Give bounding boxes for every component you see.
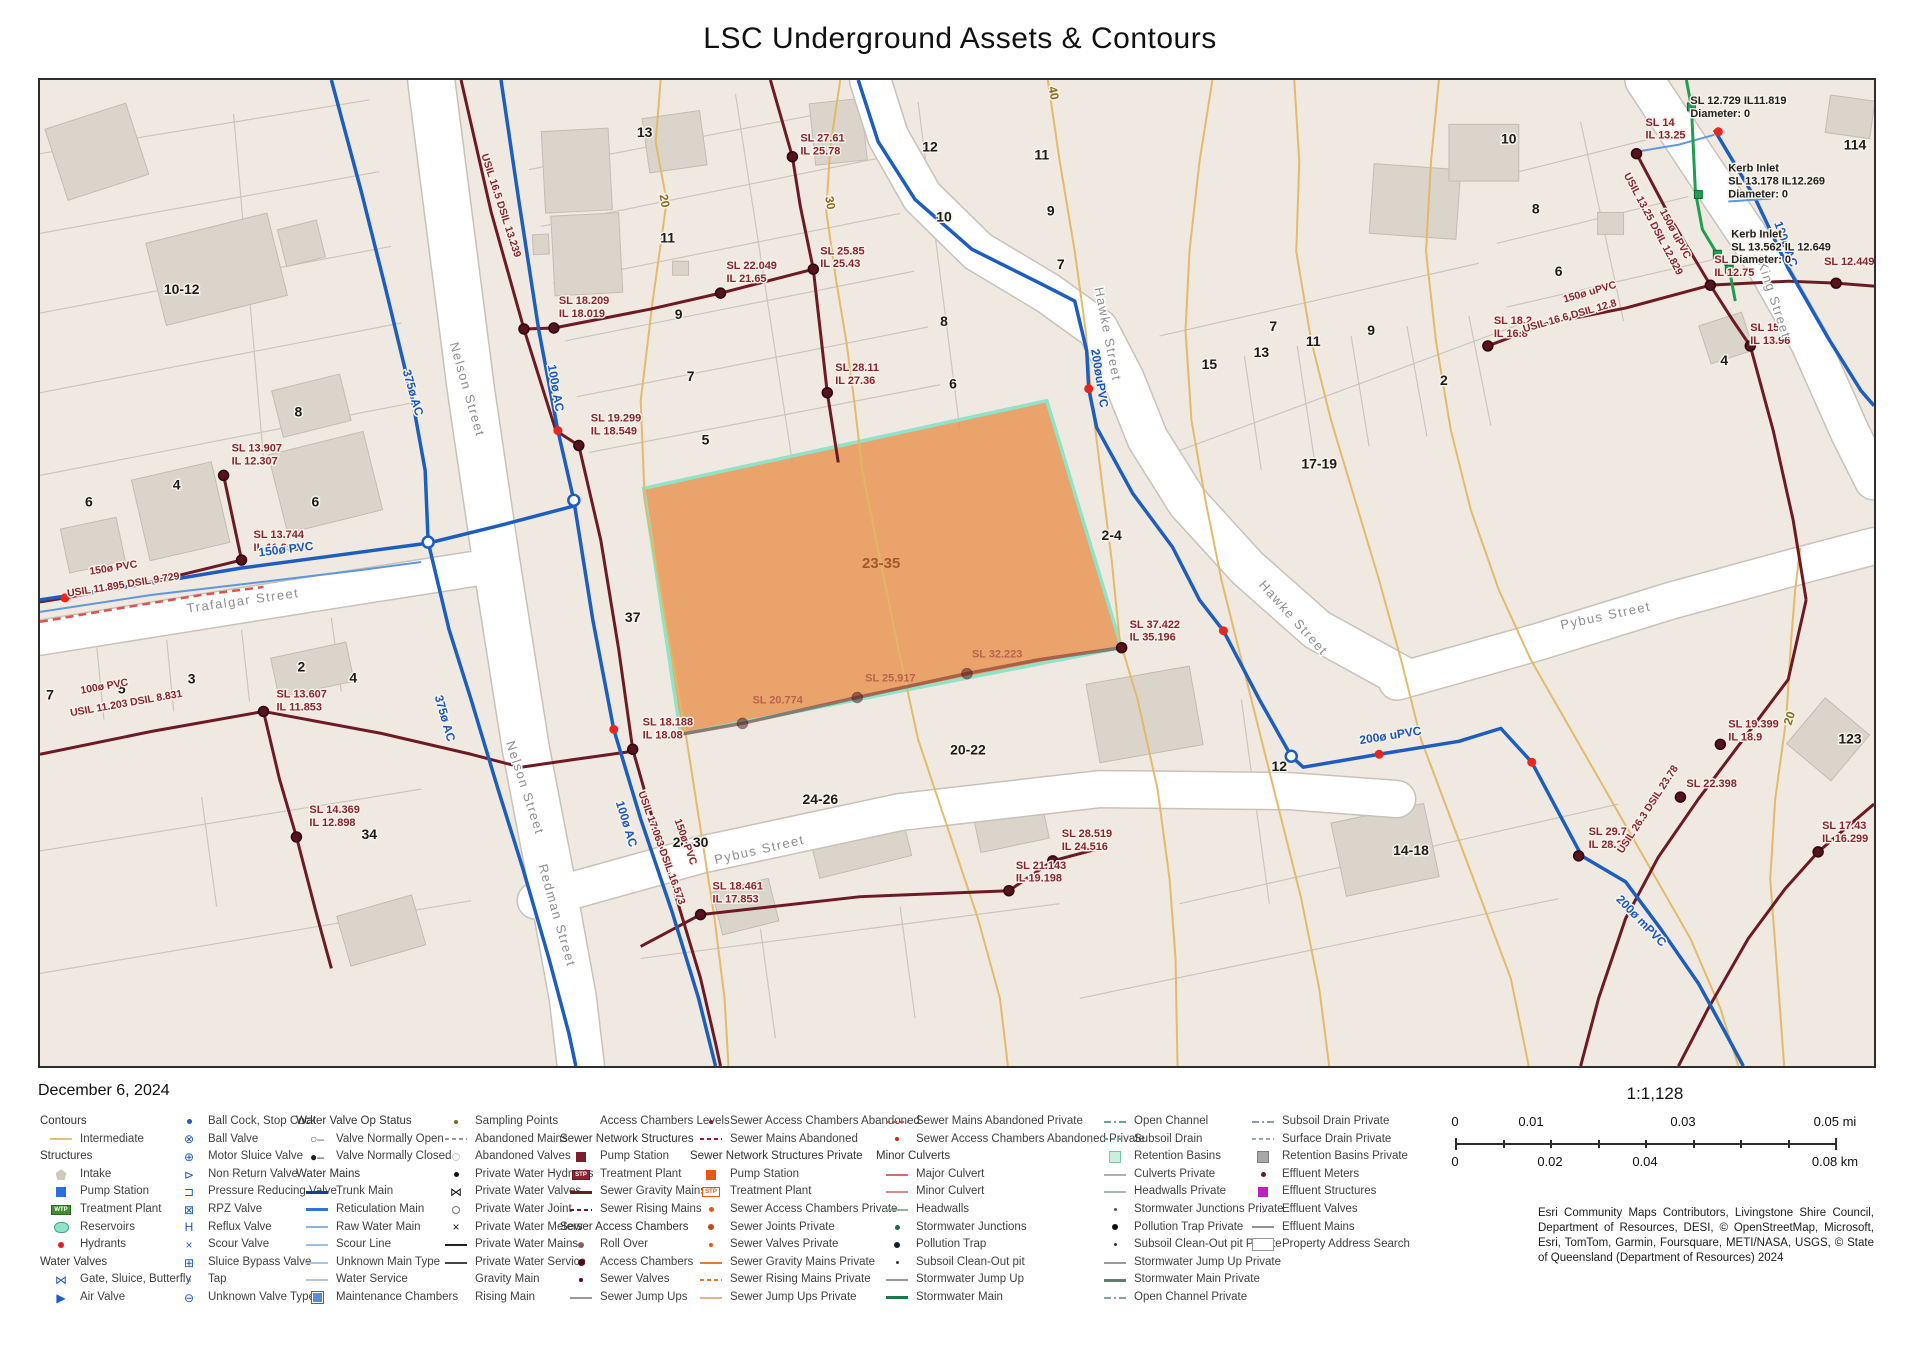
- legend-ln-icon: [698, 1297, 724, 1299]
- legend-box-icon: WTP: [48, 1205, 74, 1215]
- kerb-inlet-icon: [1694, 191, 1702, 199]
- lot-number-label: 4: [349, 670, 357, 686]
- legend-dot-icon: [443, 1172, 469, 1177]
- lot-number-label: 8: [1532, 200, 1540, 216]
- legend-item-label: Culverts Private: [1134, 1166, 1215, 1184]
- legend-gl-icon: ▶: [48, 1292, 74, 1304]
- legend-item: Unknown Main Type: [296, 1254, 458, 1272]
- legend-item-label: Effluent Meters: [1282, 1166, 1359, 1184]
- kerb-inlet-label: Diameter: 0: [1728, 189, 1788, 201]
- legend-item-label: Sewer Joints Private: [730, 1219, 835, 1237]
- lot-number-label: 5: [702, 432, 710, 448]
- legend-ln-icon: [568, 1297, 594, 1299]
- sewer-access-chamber-faded-icon: [852, 693, 862, 703]
- legend-sq-icon: [48, 1187, 74, 1197]
- building-footprint: [541, 128, 612, 213]
- legend-item-label: Sewer Jump Ups Private: [730, 1289, 857, 1307]
- legend-item-label: Sewer Jump Ups: [600, 1289, 688, 1307]
- legend-sq-icon: [1102, 1151, 1128, 1163]
- sewer-level-label: SL 13.744: [254, 529, 305, 541]
- legend-gl-icon: ⋈: [443, 1186, 469, 1198]
- legend-item-label: Open Channel Private: [1134, 1289, 1247, 1307]
- legend-item-label: Pump Station: [600, 1148, 669, 1166]
- legend-item: Effluent Meters: [1242, 1166, 1410, 1184]
- legend-grid-icon: [304, 1291, 330, 1304]
- legend-item-label: Intake: [80, 1166, 111, 1184]
- legend-gl-icon: ∶: [1250, 1204, 1276, 1216]
- attribution-text: Esri Community Maps Contributors, Living…: [1538, 1206, 1874, 1266]
- kerb-inlet-label: Kerb Inlet: [1728, 163, 1779, 175]
- hydrant-icon: [1714, 127, 1723, 136]
- sewer-access-chamber-icon: [1831, 278, 1841, 288]
- lot-number-label: 10-12: [164, 281, 200, 297]
- lot-number-label: 6: [949, 376, 957, 392]
- sewer-access-chamber-faded-icon: [737, 718, 747, 728]
- sewer-level-label: SL 37.422: [1130, 619, 1180, 631]
- sewer-level-label: IL 18.019: [559, 308, 605, 320]
- kerb-inlet-label: Kerb Inlet: [1731, 228, 1782, 240]
- legend-item-label: Pump Station: [80, 1183, 149, 1201]
- legend-item-label: Treatment Plant: [730, 1183, 811, 1201]
- legend-item-label: Stormwater Jump Up: [916, 1271, 1024, 1289]
- sewer-level-label: IL 35.196: [1130, 632, 1176, 644]
- scale-block: 1:1,128 00.010.030.05 mi00.020.040.08 km: [1455, 1084, 1855, 1172]
- sewer-access-chamber-icon: [808, 264, 818, 274]
- legend-item-label: Headwalls: [916, 1201, 969, 1219]
- legend-ln-icon: [48, 1138, 74, 1140]
- lot-number-label: 4: [1720, 352, 1728, 368]
- legend-item-label: Scour Valve: [208, 1236, 269, 1254]
- legend-item-label: Stormwater Main: [916, 1289, 1003, 1307]
- legend-item: ○–Valve Normally Open: [296, 1131, 458, 1149]
- legend-item-label: Subsoil Clean-Out pit: [916, 1254, 1025, 1272]
- legend-sq-icon: [1250, 1187, 1276, 1197]
- sewer-level-label: SL 13.907: [232, 443, 282, 455]
- sewer-level-label: SL 14: [1645, 117, 1675, 129]
- legend-gl-icon: ●–: [304, 1151, 330, 1163]
- sewer-access-chamber-icon: [822, 388, 832, 398]
- legend-gl-icon: ⊞: [176, 1257, 202, 1269]
- legend-item: Stormwater Main Private: [1094, 1271, 1284, 1289]
- sewer-level-label: SL 18.188: [643, 716, 693, 728]
- legend-item-label: Retention Basins: [1134, 1148, 1221, 1166]
- contour-label: 30: [822, 195, 838, 211]
- lot-number-label: 13: [1254, 344, 1270, 360]
- legend-ln-icon: [884, 1174, 910, 1176]
- building-footprint: [132, 462, 230, 561]
- legend-item: Reticulation Main: [296, 1201, 458, 1219]
- sewer-level-label: IL 24.516: [1062, 841, 1108, 853]
- legend-item-label: Effluent Valves: [1282, 1201, 1358, 1219]
- sewer-access-chamber-icon: [716, 288, 726, 298]
- legend-box-icon: STP: [698, 1187, 724, 1197]
- legend-ln-icon: [304, 1262, 330, 1264]
- legend-ln-icon: [304, 1208, 330, 1211]
- map-canvas: 10-1286461311975121086119710864114151311…: [40, 80, 1874, 1066]
- lot-number-label: 7: [1057, 256, 1065, 272]
- sewer-access-chamber-icon: [1715, 739, 1725, 749]
- legend-dash-icon: [568, 1209, 594, 1211]
- legend-gl-icon: ⊐: [176, 1186, 202, 1198]
- legend-dot-icon: [568, 1259, 594, 1266]
- legend-section-header: Water Mains: [296, 1166, 458, 1184]
- legend-item-label: Pollution Trap Private: [1134, 1219, 1243, 1237]
- legend-dot-icon: [1102, 1224, 1128, 1230]
- sewer-access-chamber-icon: [1705, 280, 1715, 290]
- hydrant-icon: [1084, 384, 1093, 393]
- building-footprint: [642, 111, 707, 173]
- legend-item-label: Pollution Trap: [916, 1236, 986, 1254]
- legend-item-label: Minor Culvert: [916, 1183, 984, 1201]
- sewer-level-label: SL 22.049: [727, 260, 777, 272]
- legend-item-label: Motor Sluice Valve: [208, 1148, 303, 1166]
- legend-item: Stormwater Jump Up Private: [1094, 1254, 1284, 1272]
- sewer-access-chamber-icon: [696, 910, 706, 920]
- hydrant-icon: [1527, 758, 1536, 767]
- sewer-level-label-faded: SL 20.774: [752, 694, 803, 706]
- water-valve-icon: [423, 537, 434, 548]
- water-valve-icon: [1286, 751, 1297, 762]
- contour-label: 20: [657, 193, 673, 209]
- lot-number-label: 6: [85, 493, 93, 509]
- sewer-access-chamber-icon: [219, 470, 229, 480]
- legend-item-label: Open Channel: [1134, 1113, 1208, 1131]
- legend-item-label: Air Valve: [80, 1289, 125, 1307]
- legend-sq-icon: [568, 1152, 594, 1162]
- legend-dot-icon: [884, 1225, 910, 1230]
- legend-gl-icon: ×: [176, 1239, 202, 1251]
- legend-ln-icon: [304, 1244, 330, 1246]
- legend-item-label: Sewer Mains Abandoned Private: [916, 1113, 1083, 1131]
- legend-dot-icon: [1250, 1172, 1276, 1177]
- scale-label: 0.02: [1537, 1154, 1562, 1169]
- legend-ring-icon: [443, 1206, 469, 1214]
- scale-bar: 00.010.030.05 mi00.020.040.08 km: [1455, 1112, 1855, 1172]
- scale-bar-line: [1455, 1138, 1835, 1150]
- sewer-access-chamber-icon: [259, 706, 269, 716]
- legend-column: Subsoil Drain PrivateSurface Drain Priva…: [1242, 1113, 1410, 1254]
- building-footprint: [551, 213, 623, 296]
- legend-dot-icon: [698, 1207, 724, 1212]
- lot-number-label: 9: [675, 306, 683, 322]
- legend-item-label: Abandoned Valves: [475, 1148, 571, 1166]
- legend-item-label: Sewer Mains Abandoned: [730, 1131, 858, 1149]
- lot-number-label: 6: [1555, 263, 1563, 279]
- water-valve-icon: [568, 495, 579, 506]
- lot-number-label: 20-22: [950, 741, 986, 757]
- lot-number-label: 37: [625, 609, 641, 625]
- sewer-level-label: IL 18.549: [591, 426, 637, 438]
- legend-item-label: Headwalls Private: [1134, 1183, 1226, 1201]
- sewer-access-chamber-icon: [291, 832, 301, 842]
- lot-number-label: 24-26: [802, 791, 838, 807]
- building-footprint: [1825, 95, 1874, 139]
- lot-number-label: 13: [637, 124, 653, 140]
- sewer-level-label: IL 25.78: [800, 146, 840, 158]
- sewer-access-chamber-icon: [1004, 886, 1014, 896]
- legend-gl-icon: ⊕: [176, 1151, 202, 1163]
- sewer-level-label: IL 12.307: [232, 455, 278, 467]
- legend-item: Water Service: [296, 1271, 458, 1289]
- lot-number-label: 15: [1202, 356, 1218, 372]
- legend-dot-icon: [884, 1261, 910, 1264]
- legend-sq-icon: [1250, 1151, 1276, 1163]
- page-title: LSC Underground Assets & Contours: [0, 22, 1920, 56]
- sewer-level-label: SL 28.519: [1062, 828, 1112, 840]
- legend-ln-icon: [698, 1262, 724, 1264]
- sewer-level-label: SL 19.399: [1728, 718, 1778, 730]
- sewer-access-chamber-icon: [574, 441, 584, 451]
- legend-box-icon: STP: [568, 1170, 594, 1180]
- sewer-level-label: IL 11.853: [276, 701, 322, 713]
- sewer-level-label: IL 18.08: [643, 729, 683, 741]
- sewer-level-label: SL 18.209: [559, 295, 609, 307]
- legend-dd-icon: [1102, 1297, 1128, 1299]
- legend-item-label: Unknown Main Type: [336, 1254, 440, 1272]
- legend-ln-icon: [884, 1279, 910, 1281]
- lot-number-label: 10: [936, 208, 952, 224]
- scale-label: 0.01: [1518, 1114, 1543, 1129]
- legend-ln-icon: [1102, 1279, 1128, 1282]
- scale-label: 0.08 km: [1812, 1154, 1858, 1169]
- sewer-access-chamber-icon: [549, 323, 559, 333]
- legend-gl-icon: ⊗: [176, 1133, 202, 1145]
- legend-ring-icon: [443, 1153, 469, 1161]
- legend-item: Raw Water Main: [296, 1219, 458, 1237]
- legend-ro-icon: [1250, 1238, 1276, 1251]
- sewer-level-label: SL 12.449: [1824, 256, 1874, 268]
- map-frame: 10-1286461311975121086119710864114151311…: [38, 78, 1876, 1068]
- legend-item-label: Non Return Valve: [208, 1166, 298, 1184]
- sewer-level-label: SL 18.461: [713, 881, 763, 893]
- legend-item-label: Reticulation Main: [336, 1201, 424, 1219]
- legend-item-label: Pump Station: [730, 1166, 799, 1184]
- kerb-inlet-label: SL 13.562 IL 12.649: [1731, 241, 1831, 253]
- sewer-access-chamber-icon: [1632, 149, 1642, 159]
- kerb-inlet-label: SL 13.178 IL12.269: [1728, 176, 1825, 188]
- legend-item-label: Subsoil Drain: [1134, 1131, 1202, 1149]
- lot-number-label: 9: [1047, 202, 1055, 218]
- legend-cyl-icon: [48, 1222, 74, 1233]
- legend-pent-icon: [48, 1169, 74, 1180]
- sewer-level-label: SL 25.85: [820, 245, 864, 257]
- legend-dot-icon: [884, 1242, 910, 1248]
- legend-item-label: Gravity Main: [475, 1271, 540, 1289]
- sewer-level-label: IL 18.9: [1728, 731, 1762, 743]
- sewer-level-label: IL 17.853: [713, 894, 759, 906]
- legend-item-label: Retention Basins Private: [1282, 1148, 1408, 1166]
- legend-dot-icon: [698, 1243, 724, 1247]
- legend-ln-icon: [1102, 1262, 1128, 1264]
- legend-item-label: Stormwater Jump Up Private: [1134, 1254, 1281, 1272]
- lot-number-label: 34: [362, 826, 378, 842]
- legend-item: Effluent Structures: [1242, 1183, 1410, 1201]
- legend-item: ●–Valve Normally Closed: [296, 1148, 458, 1166]
- legend-ln-icon: [568, 1191, 594, 1194]
- hydrant-icon: [553, 426, 562, 435]
- scale-label: 0.03: [1670, 1114, 1695, 1129]
- kerb-inlet-label: SL 12.729 IL11.819: [1690, 95, 1786, 107]
- lot-number-label: 17-19: [1301, 455, 1337, 471]
- legend-dot-icon: [1102, 1208, 1128, 1211]
- legend-sq-icon: [698, 1170, 724, 1180]
- legend-item-label: Stormwater Main Private: [1134, 1271, 1260, 1289]
- legend-dash-icon: [698, 1138, 724, 1140]
- sewer-access-chamber-icon: [1813, 847, 1823, 857]
- sewer-level-label: IL 21.65: [727, 273, 767, 285]
- legend-item: ∶Effluent Valves: [1242, 1201, 1410, 1219]
- legend-item-label: Reflux Valve: [208, 1219, 272, 1237]
- sewer-level-label: SL 29.7: [1589, 826, 1627, 838]
- legend-dot-icon: [568, 1278, 594, 1282]
- lot-number-label: 114: [1844, 137, 1867, 153]
- lot-number-label: 8: [295, 404, 303, 420]
- legend-item-label: Stormwater Junctions: [916, 1219, 1027, 1237]
- legend-item-label: Ball Valve: [208, 1131, 258, 1149]
- lot-number-label: 12: [1272, 758, 1288, 774]
- legend-item-label: Sewer Rising Mains Private: [730, 1271, 871, 1289]
- sewer-level-label: SL 21.143: [1016, 860, 1066, 872]
- sewer-level-label: IL 25.43: [820, 258, 860, 270]
- sewer-access-chamber-icon: [1483, 341, 1493, 351]
- lot-number-label: 11: [1306, 333, 1321, 349]
- legend-item-label: Roll Over: [600, 1236, 648, 1254]
- sewer-level-label: IL 12.75: [1714, 267, 1754, 279]
- legend-column: Water Valve Op Status○–Valve Normally Op…: [296, 1113, 458, 1307]
- legend-dd-icon: [1250, 1121, 1276, 1123]
- lot-number-label: 7: [46, 686, 54, 702]
- legend-dash-icon: [1250, 1138, 1276, 1140]
- legend-gl-icon: H: [176, 1221, 202, 1233]
- sewer-level-label: IL 19.198: [1016, 873, 1062, 885]
- legend-ln-icon: [443, 1262, 469, 1264]
- hydrant-icon: [1375, 750, 1384, 759]
- map-date: December 6, 2024: [38, 1082, 170, 1100]
- legend-item: Open Channel Private: [1094, 1289, 1284, 1307]
- sewer-level-label-faded: SL 25.917: [865, 673, 915, 685]
- parcel-number-label: 23-35: [862, 555, 900, 572]
- legend-item-label: Treatment Plant: [600, 1166, 681, 1184]
- lot-number-label: 14-18: [1393, 842, 1429, 858]
- legend-item-label: Subsoil Drain Private: [1282, 1113, 1389, 1131]
- lot-number-label: 10: [1501, 131, 1517, 147]
- legend-ln-icon: [884, 1209, 910, 1211]
- lot-number-label: 11: [660, 229, 675, 245]
- legend-item-label: Rising Main: [475, 1289, 535, 1307]
- sewer-level-label-faded: SL 32.223: [972, 649, 1022, 661]
- legend-ln-icon: [1250, 1226, 1276, 1228]
- legend-gl-icon: ⊳: [176, 1169, 202, 1181]
- building-footprint: [1598, 212, 1624, 234]
- lot-number-label: 12: [922, 139, 938, 155]
- legend-item: Scour Line: [296, 1236, 458, 1254]
- legend-item-label: Raw Water Main: [336, 1219, 421, 1237]
- sewer-level-label: SL 27.61: [800, 133, 844, 145]
- legend-item-label: Abandoned Mains: [475, 1131, 568, 1149]
- legend-dot-icon: [884, 1137, 910, 1141]
- sewer-level-label: SL 17.43: [1822, 820, 1866, 832]
- legend-dot-icon: [176, 1119, 202, 1124]
- legend-gl-icon: ▫: [176, 1274, 202, 1286]
- legend-item-label: Surface Drain Private: [1282, 1131, 1391, 1149]
- legend-dash-icon: [884, 1121, 910, 1123]
- hydrant-icon: [609, 725, 618, 734]
- legend-item: Subsoil Drain Private: [1242, 1113, 1410, 1131]
- scale-label: 0: [1451, 1154, 1458, 1169]
- sewer-access-chamber-icon: [519, 324, 529, 334]
- legend-gl-icon: ⊠: [176, 1204, 202, 1216]
- sewer-access-chamber-faded-icon: [962, 669, 972, 679]
- lot-number-label: 2: [298, 659, 306, 675]
- sewer-level-label: SL 28.11: [835, 362, 879, 374]
- lot-number-label: 7: [1269, 318, 1277, 334]
- legend-item-label: Trunk Main: [336, 1183, 393, 1201]
- sewer-access-chamber-icon: [628, 744, 638, 754]
- map-export-page: LSC Underground Assets & Contours 10-128…: [0, 0, 1920, 1358]
- legend-item-label: Access Chambers: [600, 1254, 693, 1272]
- lot-number-label: 3: [188, 671, 196, 687]
- legend-dash-icon: [1102, 1138, 1128, 1140]
- legend-item-label: Sewer Gravity Mains Private: [730, 1254, 875, 1272]
- building-footprint: [673, 261, 689, 275]
- sewer-access-chamber-icon: [237, 555, 247, 565]
- legend-dot-icon: [698, 1224, 724, 1230]
- legend-dot-icon: [698, 1120, 724, 1124]
- sewer-level-label: SL 13.607: [276, 689, 326, 701]
- sewer-access-chamber-icon: [1675, 792, 1685, 802]
- legend-dot-icon: [48, 1242, 74, 1248]
- legend-item-label: Scour Line: [336, 1236, 391, 1254]
- legend-item: Retention Basins Private: [1242, 1148, 1410, 1166]
- legend-dash-icon: [443, 1138, 469, 1140]
- legend-item-label: Intermediate: [80, 1131, 144, 1149]
- legend-item-label: Sewer Access Chambers Private: [730, 1201, 897, 1219]
- lot-number-label: 4: [173, 476, 181, 492]
- sewer-level-label: SL 22.398: [1686, 778, 1736, 790]
- legend-item: Surface Drain Private: [1242, 1131, 1410, 1149]
- sewer-level-label: IL 16.299: [1822, 833, 1868, 845]
- legend-item-label: Tap: [208, 1271, 227, 1289]
- legend-dash-icon: [698, 1279, 724, 1281]
- legend-item-label: Reservoirs: [80, 1219, 135, 1237]
- legend-dot-icon: [443, 1120, 469, 1124]
- scale-label: 0.04: [1632, 1154, 1657, 1169]
- kerb-inlet-label: Diameter: 0: [1690, 108, 1750, 120]
- kerb-inlet-label: Diameter: 0: [1731, 254, 1791, 266]
- legend-ln-icon: [304, 1279, 330, 1281]
- legend-item-label: Effluent Mains: [1282, 1219, 1355, 1237]
- sewer-access-chamber-icon: [1117, 643, 1127, 653]
- legend-ln-icon: [443, 1244, 469, 1246]
- legend-item-label: Hydrants: [80, 1236, 126, 1254]
- legend-item-label: Sewer Valves Private: [730, 1236, 838, 1254]
- legend-item-label: Water Service: [336, 1271, 408, 1289]
- lot-number-label: 2-4: [1102, 527, 1122, 543]
- legend-ln-icon: [884, 1296, 910, 1299]
- legend-item: Maintenance Chambers: [296, 1289, 458, 1307]
- legend-gl-icon: ×: [443, 1221, 469, 1233]
- legend-item-label: RPZ Valve: [208, 1201, 262, 1219]
- legend-ln-icon: [884, 1191, 910, 1193]
- legend-gl-icon: ⊖: [176, 1292, 202, 1304]
- legend-item-label: Sewer Valves: [600, 1271, 669, 1289]
- legend-item-label: Private Water Joint: [475, 1201, 572, 1219]
- legend-item-label: Effluent Structures: [1282, 1183, 1376, 1201]
- legend-item: Property Address Search: [1242, 1236, 1410, 1254]
- legend-section-header: Water Valve Op Status: [296, 1113, 458, 1131]
- legend-ln-icon: [304, 1226, 330, 1228]
- legend-ln-icon: [1102, 1174, 1128, 1176]
